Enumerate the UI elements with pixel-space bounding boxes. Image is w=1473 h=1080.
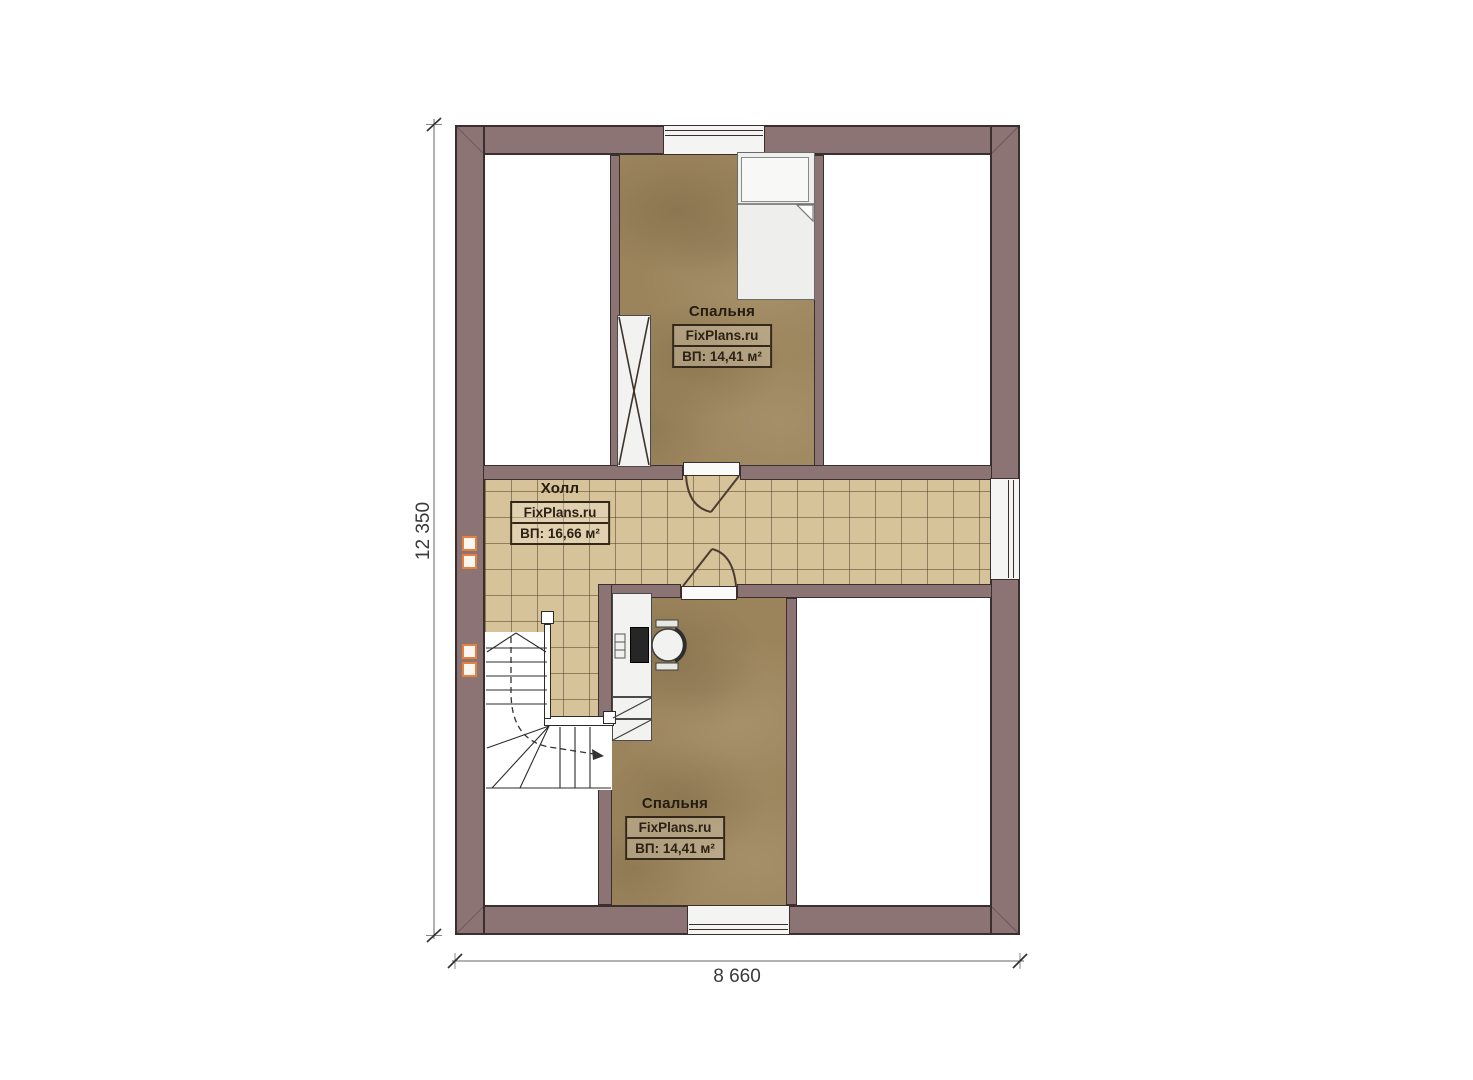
room-label-hall: Холл FixPlans.ru ВП: 16,66 м² bbox=[510, 480, 610, 545]
desk-monitor bbox=[630, 627, 649, 663]
staircase-winder bbox=[548, 726, 612, 790]
watermark-text: FixPlans.ru bbox=[674, 326, 770, 345]
room-info-box: FixPlans.ru ВП: 14,41 м² bbox=[672, 324, 772, 368]
window-bottom bbox=[687, 905, 790, 935]
stair-railing-post bbox=[603, 711, 616, 724]
wall-hall-bottom-right-segment bbox=[737, 584, 992, 598]
room-area: ВП: 14,41 м² bbox=[627, 837, 723, 858]
wall-hall-top-right-segment bbox=[740, 465, 992, 480]
attic-space-top-right bbox=[824, 155, 990, 465]
wall-hall-top-left-segment bbox=[483, 465, 683, 480]
window-right bbox=[990, 478, 1020, 580]
door-opening-bedroom-bottom bbox=[681, 586, 737, 600]
room-name: Спальня bbox=[625, 795, 725, 812]
stair-railing-post bbox=[541, 611, 554, 624]
room-label-bedroom-bottom: Спальня FixPlans.ru ВП: 14,41 м² bbox=[625, 795, 725, 860]
door-opening-bedroom-top bbox=[683, 462, 740, 476]
room-area: ВП: 16,66 м² bbox=[512, 522, 608, 543]
wall-bedroom-bottom-right bbox=[786, 598, 797, 905]
vent-marker bbox=[462, 662, 477, 677]
room-label-bedroom-top: Спальня FixPlans.ru ВП: 14,41 м² bbox=[672, 303, 772, 368]
watermark-text: FixPlans.ru bbox=[627, 818, 723, 837]
room-info-box: FixPlans.ru ВП: 16,66 м² bbox=[510, 501, 610, 545]
vent-marker bbox=[462, 554, 477, 569]
room-name: Холл bbox=[510, 480, 610, 497]
window-bottom-glazing bbox=[689, 924, 788, 930]
wardrobe bbox=[617, 315, 651, 467]
window-top-glazing bbox=[665, 130, 763, 136]
dimension-label-width: 8 660 bbox=[687, 966, 787, 988]
staircase-upper-flight bbox=[485, 632, 548, 790]
stair-railing-line bbox=[544, 624, 551, 719]
outer-wall-left bbox=[455, 125, 485, 935]
window-right-glazing bbox=[1008, 480, 1014, 578]
shelf-unit bbox=[612, 719, 652, 741]
room-info-box: FixPlans.ru ВП: 14,41 м² bbox=[625, 816, 725, 860]
wall-bedroom-top-right bbox=[814, 155, 824, 467]
bed-pillow bbox=[741, 157, 809, 202]
dimension-label-height: 12 350 bbox=[413, 481, 435, 581]
room-name: Спальня bbox=[672, 303, 772, 320]
shelf-unit bbox=[612, 697, 652, 719]
room-area: ВП: 14,41 м² bbox=[674, 345, 770, 366]
floor-plan-page: Спальня FixPlans.ru ВП: 14,41 м² Холл Fi… bbox=[0, 0, 1473, 1080]
vent-marker bbox=[462, 644, 477, 659]
vent-marker bbox=[462, 536, 477, 551]
attic-space-bottom-right bbox=[797, 598, 990, 905]
attic-space-top-left bbox=[485, 155, 610, 465]
watermark-text: FixPlans.ru bbox=[512, 503, 608, 522]
